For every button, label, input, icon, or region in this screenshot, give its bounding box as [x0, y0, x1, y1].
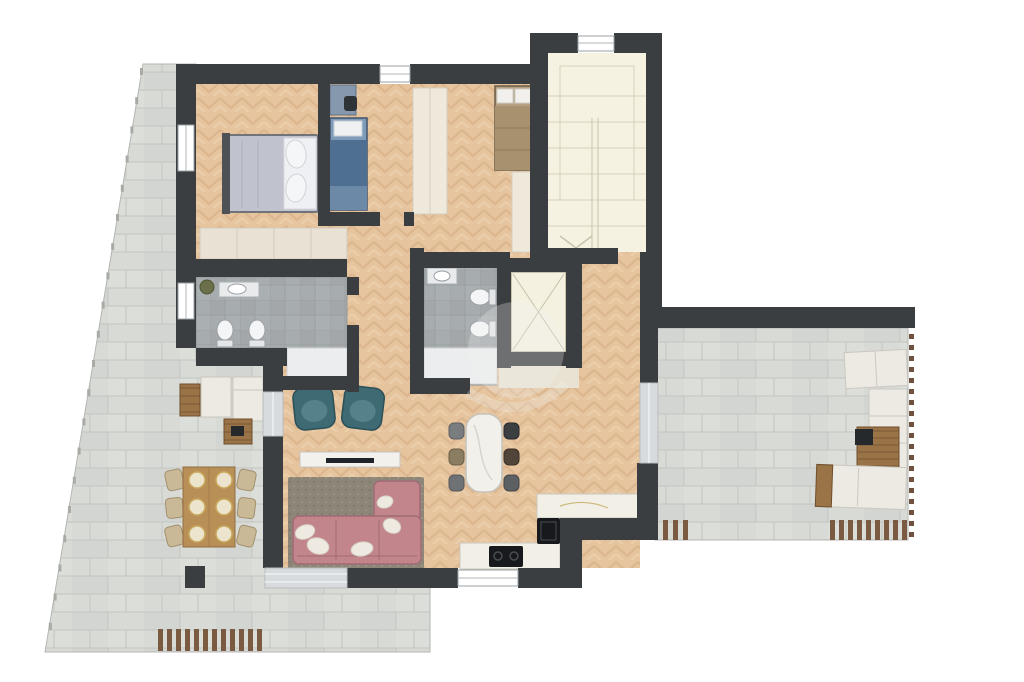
terrace-pillar	[185, 566, 205, 588]
wall	[637, 463, 658, 540]
dining-chair	[449, 449, 464, 465]
wood-slat	[239, 629, 244, 651]
wall	[347, 348, 359, 392]
outdoor-lounge-seat	[201, 377, 231, 417]
railing-dot	[909, 422, 914, 427]
railing-dot	[909, 411, 914, 416]
bathroom-1-shower-alcove	[287, 348, 347, 378]
wall	[614, 33, 662, 53]
sliding-glass-door	[265, 568, 347, 588]
terrace-edge-tick	[97, 331, 100, 338]
wall	[530, 53, 548, 252]
single-bed-pillow	[334, 121, 362, 136]
terrace-edge-tick	[126, 156, 129, 163]
wood-slat	[194, 629, 199, 651]
dining-table	[466, 414, 502, 492]
entry-wood-floor	[582, 248, 642, 392]
railing-dot	[909, 389, 914, 394]
wood-slat	[673, 520, 678, 540]
railing-dot	[909, 521, 914, 526]
wall	[518, 568, 582, 588]
railing-dot	[909, 400, 914, 405]
wood-slat	[866, 520, 871, 540]
wall	[410, 252, 510, 268]
place-setting	[216, 499, 232, 515]
terrace-edge-tick	[116, 214, 119, 221]
place-setting	[216, 472, 232, 488]
dining-chair	[504, 449, 519, 465]
terrace-edge-tick	[92, 360, 95, 367]
kitchen-counter-right	[537, 494, 638, 518]
wood-slat	[893, 520, 898, 540]
bedroom-3-wardrobe	[512, 172, 532, 252]
wood-slat	[158, 629, 163, 651]
bed-3-pillow	[497, 89, 513, 103]
bathroom-1-basin	[228, 284, 246, 294]
toilet-tank	[489, 289, 496, 305]
wood-slat	[185, 629, 190, 651]
bathroom-plant	[200, 280, 214, 294]
wall	[646, 53, 662, 252]
wall	[410, 265, 424, 380]
wall	[176, 64, 380, 84]
dining-chair	[504, 475, 519, 491]
railing-dot	[909, 444, 914, 449]
bidet	[249, 320, 265, 340]
railing-dot	[909, 334, 914, 339]
wall	[196, 259, 347, 277]
wall	[640, 307, 915, 328]
terrace-edge-tick	[63, 535, 66, 542]
railing-dot	[909, 433, 914, 438]
tv-screen	[326, 458, 374, 463]
dining-chair	[449, 423, 464, 439]
wood-slat	[248, 629, 253, 651]
railing-dot	[909, 378, 914, 383]
wall	[330, 212, 380, 226]
wood-slat	[884, 520, 889, 540]
toilet	[470, 289, 490, 305]
stairwell-floor	[548, 53, 646, 252]
railing-dot	[909, 466, 914, 471]
wall	[410, 378, 470, 394]
wall	[511, 258, 582, 272]
terrace-edge-tick	[121, 185, 124, 192]
wall	[347, 277, 359, 295]
dining-chair	[504, 423, 519, 439]
wall	[347, 325, 359, 348]
outdoor-table-tray	[855, 429, 873, 445]
toilet	[217, 320, 233, 340]
place-setting	[189, 499, 205, 515]
wood-slat	[167, 629, 172, 651]
terrace-edge-tick	[68, 506, 71, 513]
wood-slat	[257, 629, 262, 651]
terrace-dining-chair	[165, 497, 184, 519]
terrace-edge-tick	[54, 594, 57, 601]
terrace-edge-tick	[78, 448, 81, 455]
wood-slat	[212, 629, 217, 651]
wall	[530, 33, 578, 53]
terrace-edge-tick	[102, 302, 105, 309]
railing-dot	[909, 477, 914, 482]
single-bed-blanket	[330, 140, 367, 186]
place-setting	[189, 472, 205, 488]
place-setting	[189, 526, 205, 542]
terrace-dining-chair	[164, 468, 185, 491]
wood-slat	[857, 520, 862, 540]
terrace-edge-tick	[135, 97, 138, 104]
railing-dot	[909, 532, 914, 537]
terrace-edge-tick	[73, 477, 76, 484]
wall	[318, 84, 330, 226]
floor-plan-canvas	[0, 0, 1024, 682]
wood-slat	[176, 629, 181, 651]
desk-chair	[344, 96, 357, 111]
terrace-dining-chair	[237, 497, 256, 519]
terrace-edge-tick	[49, 623, 52, 630]
wood-slat	[848, 520, 853, 540]
watermark	[468, 302, 564, 398]
wood-slat	[221, 629, 226, 651]
outdoor-crate-table	[180, 384, 200, 416]
bidet-base	[249, 340, 265, 347]
double-bed-headboard	[222, 133, 230, 214]
bathroom-2-basin	[434, 271, 450, 281]
railing-dot	[909, 488, 914, 493]
wall	[404, 212, 414, 226]
wood-slat	[839, 520, 844, 540]
floor-plan-page	[0, 0, 1024, 682]
railing-dot	[909, 510, 914, 515]
toilet-tank	[217, 340, 233, 347]
bed-3-pillow	[515, 89, 531, 103]
terrace-edge-tick	[106, 272, 109, 279]
railing-dot	[909, 345, 914, 350]
wall	[410, 64, 530, 84]
place-setting	[216, 526, 232, 542]
railing-dot	[909, 356, 914, 361]
railing-dot	[909, 455, 914, 460]
terrace-edge-tick	[58, 564, 61, 571]
crate-tray	[231, 426, 244, 436]
wood-slat	[830, 520, 835, 540]
outdoor-daybed-wood-end	[815, 464, 832, 507]
terrace-edge-tick	[140, 68, 143, 75]
single-bed-blanket-end	[330, 186, 367, 210]
wood-slat	[902, 520, 907, 540]
terrace-edge-tick	[87, 389, 90, 396]
wood-slat	[683, 520, 688, 540]
dining-chair	[449, 475, 464, 491]
terrace-edge-tick	[82, 418, 85, 425]
wood-slat	[875, 520, 880, 540]
railing-dot	[909, 367, 914, 372]
terrace-edge-tick	[111, 243, 114, 250]
wall	[560, 540, 582, 570]
wall	[347, 568, 458, 588]
wood-slat	[663, 520, 668, 540]
railing-dot	[909, 499, 914, 504]
terrace-dining-chair	[236, 469, 257, 492]
bed-3-duvet	[495, 106, 533, 170]
outdoor-lounge-chair	[233, 377, 263, 421]
terrace-edge-tick	[130, 126, 133, 133]
wood-slat	[203, 629, 208, 651]
wood-slat	[230, 629, 235, 651]
